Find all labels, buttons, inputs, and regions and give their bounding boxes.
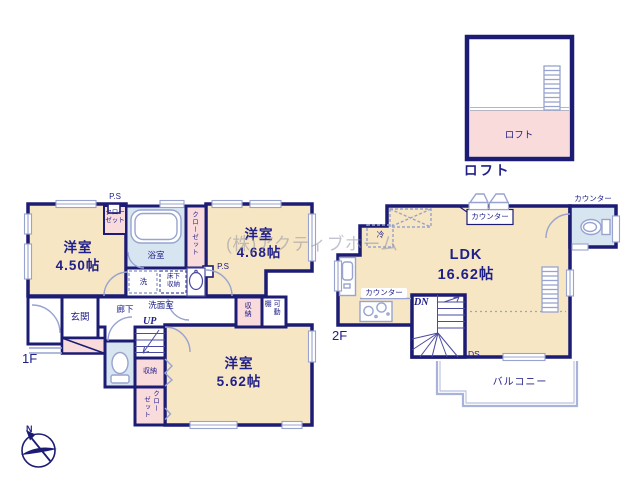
loft-ladder-2f (542, 267, 558, 312)
toilet2f-vent (572, 244, 588, 250)
washer-label: 洗 (136, 277, 151, 287)
floor1-label: 1F (22, 351, 37, 368)
watermark: (株)アクティブホーム (226, 231, 398, 256)
entrance-step (62, 338, 105, 354)
up-label: UP (143, 315, 156, 328)
loft-room-label: ロフト (494, 130, 544, 142)
storage-stairs-label: 収納 (136, 367, 164, 376)
ps-mid-label: P.S (213, 262, 233, 272)
ds-label: DS (468, 349, 480, 360)
toilet-1f-icon (111, 353, 129, 384)
balcony-label: バルコニー (478, 376, 562, 389)
room-450-label: 洋室4.50帖 (36, 239, 120, 274)
shelf-col1: 可動 (272, 300, 281, 318)
closet-c-col1: クロー (150, 390, 158, 416)
ps-top-label: P.S (104, 192, 126, 202)
toilet2f-window (613, 216, 620, 242)
loft-ladder (544, 66, 560, 110)
hallway-label: 廊下 (110, 304, 140, 315)
sink-1f (187, 268, 205, 296)
compass-north-label: N (26, 424, 33, 436)
shelf-col2: 棚 (263, 300, 272, 312)
closet-a-label: クローゼット (103, 209, 127, 225)
bath-label: 浴室 (136, 250, 176, 261)
entrance-label: 玄関 (62, 312, 98, 324)
floorplan: P.S クローゼット 浴室 クローゼット 洋室4.50帖 洋室4.68帖 P.S… (0, 0, 640, 480)
loft-floor-label: ロフト (464, 162, 511, 180)
closet-b-label: クローゼット (189, 211, 197, 267)
counter-window-label: カウンター (467, 212, 513, 222)
closet-c-col2: ゼット (141, 396, 149, 422)
stove (360, 302, 392, 322)
storage-top-label: 収納 (243, 302, 252, 324)
counter-kitchen-label: カウンター (361, 288, 407, 298)
room-562-label: 洋室5.62帖 (197, 355, 281, 390)
underfloor-label: 床下収納 (161, 273, 186, 289)
dn-label: DN (414, 296, 428, 309)
toilet-2f-icon (581, 220, 610, 235)
counter-toilet-label: カウンター (568, 194, 618, 204)
ldk-label: LDK16.62帖 (416, 246, 516, 285)
floor2-label: 2F (332, 328, 347, 345)
washroom-label: 洗面室 (140, 300, 182, 311)
